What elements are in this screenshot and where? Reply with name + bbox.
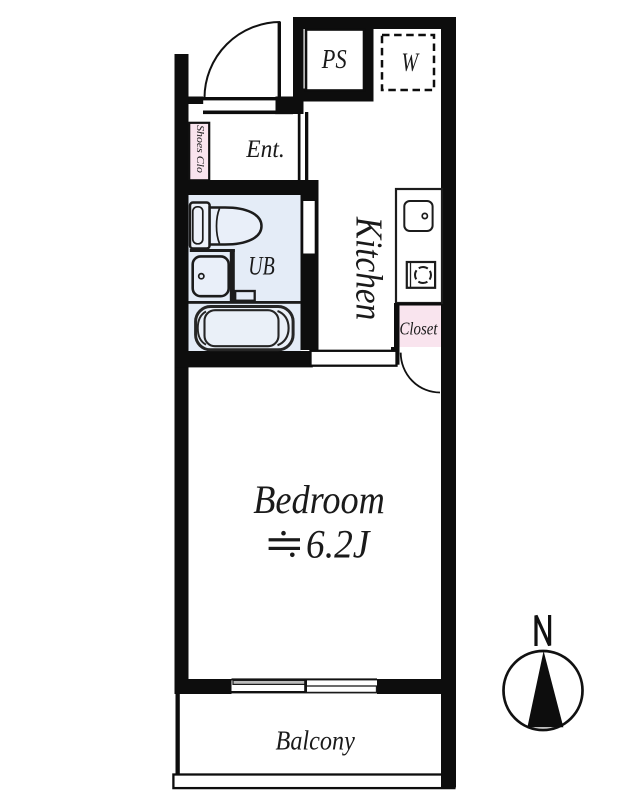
svg-text:W: W xyxy=(401,48,420,77)
svg-text:Balcony: Balcony xyxy=(276,725,356,756)
svg-text:Ent.: Ent. xyxy=(245,135,284,163)
svg-text:Bedroom: Bedroom xyxy=(253,478,385,522)
svg-text:Closet: Closet xyxy=(400,318,438,339)
svg-text:UB: UB xyxy=(248,252,274,281)
svg-text:6.2J: 6.2J xyxy=(306,522,371,566)
svg-text:Shoes Clo: Shoes Clo xyxy=(194,125,206,173)
svg-text:PS: PS xyxy=(321,45,347,74)
svg-text:Kitchen: Kitchen xyxy=(348,216,391,320)
